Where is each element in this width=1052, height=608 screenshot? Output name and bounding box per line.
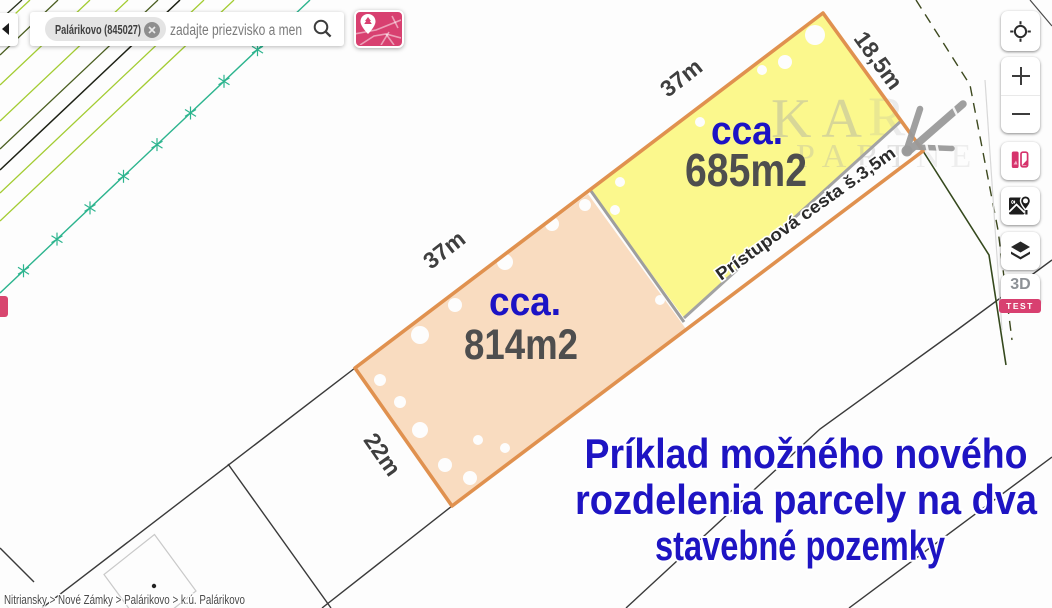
svg-text:685m2: 685m2: [685, 144, 807, 196]
svg-text:Palárikovo (845027): Palárikovo (845027): [55, 22, 141, 37]
svg-text:Nitriansky > Nové Zámky > Palá: Nitriansky > Nové Zámky > Palárikovo > k…: [4, 593, 245, 607]
svg-text:stavebné pozemky: stavebné pozemky: [655, 522, 945, 569]
svg-text:Príklad možného nového: Príklad možného nového: [585, 430, 1028, 477]
svg-text:814m2: 814m2: [464, 321, 578, 369]
svg-text:zadajte priezvisko a men: zadajte priezvisko a men: [170, 22, 302, 39]
svg-text:cca.: cca.: [489, 280, 561, 324]
svg-text:rozdelenia parcely na dva: rozdelenia parcely na dva: [575, 476, 1038, 523]
